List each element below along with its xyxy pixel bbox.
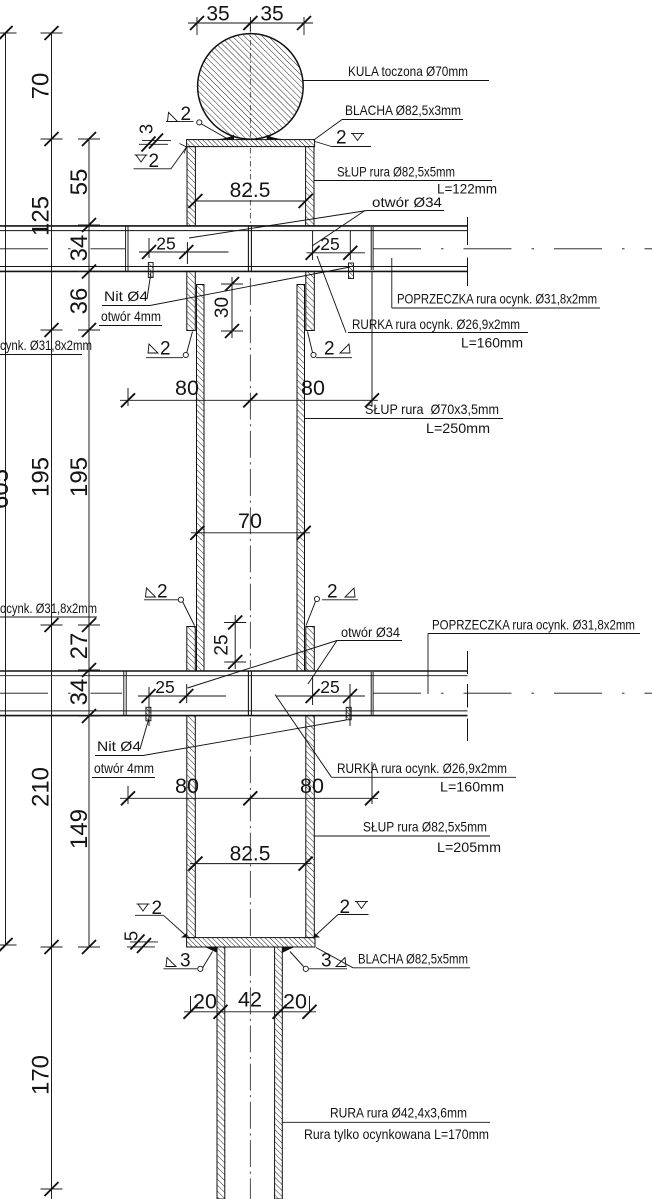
svg-text:80: 80 xyxy=(175,774,199,798)
svg-text:Rura tylko ocynkowana L=170mm: Rura tylko ocynkowana L=170mm xyxy=(304,1126,489,1142)
svg-text:2: 2 xyxy=(160,339,171,360)
svg-text:34: 34 xyxy=(66,679,93,706)
svg-text:30: 30 xyxy=(212,297,233,318)
svg-text:2: 2 xyxy=(324,339,335,360)
svg-text:Nit Ø4: Nit Ø4 xyxy=(104,288,148,304)
svg-text:cynk. Ø31,8x2mm: cynk. Ø31,8x2mm xyxy=(0,337,92,353)
svg-text:80: 80 xyxy=(175,376,199,400)
svg-text:Nit Ø4: Nit Ø4 xyxy=(97,738,141,754)
svg-text:BLACHA Ø82,5x5mm: BLACHA Ø82,5x5mm xyxy=(358,951,468,967)
svg-text:82.5: 82.5 xyxy=(230,843,271,866)
svg-text:20: 20 xyxy=(193,990,217,1014)
svg-text:2: 2 xyxy=(152,898,163,919)
svg-text:SŁUP rura Ø70x3,5mm: SŁUP rura Ø70x3,5mm xyxy=(365,401,499,417)
svg-text:POPRZECZKA rura ocynk. Ø31,8x2: POPRZECZKA rura ocynk. Ø31,8x2mm xyxy=(397,291,597,307)
svg-text:125: 125 xyxy=(28,196,55,236)
svg-text:80: 80 xyxy=(301,376,325,400)
svg-text:55: 55 xyxy=(66,169,93,196)
svg-text:RURKA rura ocynk. Ø26,9x2mm: RURKA rura ocynk. Ø26,9x2mm xyxy=(352,316,520,332)
svg-text:36: 36 xyxy=(66,288,93,315)
svg-text:RURA rura Ø42,4x3,6mm: RURA rura Ø42,4x3,6mm xyxy=(330,1105,467,1121)
svg-text:SŁUP rura Ø82,5x5mm: SŁUP rura Ø82,5x5mm xyxy=(337,164,455,180)
svg-text:70: 70 xyxy=(28,73,55,100)
svg-text:149: 149 xyxy=(66,809,93,849)
svg-text:2: 2 xyxy=(336,128,347,149)
svg-text:34: 34 xyxy=(66,235,93,262)
svg-text:210: 210 xyxy=(28,767,55,807)
svg-text:25: 25 xyxy=(155,677,174,697)
svg-text:L=122mm: L=122mm xyxy=(437,181,497,197)
svg-text:L=160mm: L=160mm xyxy=(461,335,523,351)
svg-text:otwór Ø34: otwór Ø34 xyxy=(372,194,442,210)
svg-text:L=160mm: L=160mm xyxy=(440,779,504,795)
svg-text:42: 42 xyxy=(238,988,262,1012)
svg-text:35: 35 xyxy=(206,3,229,26)
svg-text:otwór Ø34: otwór Ø34 xyxy=(341,624,400,640)
svg-text:170: 170 xyxy=(28,1055,55,1095)
svg-text:25: 25 xyxy=(156,234,175,254)
svg-text:25: 25 xyxy=(320,677,339,697)
svg-text:25: 25 xyxy=(320,234,339,254)
svg-text:195: 195 xyxy=(66,457,93,497)
svg-text:80: 80 xyxy=(300,774,324,798)
svg-text:35: 35 xyxy=(260,3,283,26)
svg-text:otwór 4mm: otwór 4mm xyxy=(101,308,161,324)
svg-text:L=250mm: L=250mm xyxy=(426,420,490,436)
svg-text:otwór 4mm: otwór 4mm xyxy=(94,760,154,776)
svg-text:3: 3 xyxy=(136,124,157,134)
svg-text:L=205mm: L=205mm xyxy=(437,839,501,855)
svg-text:27: 27 xyxy=(66,633,93,660)
svg-text:5: 5 xyxy=(121,931,142,941)
svg-text:RURKA rura ocynk. Ø26,9x2mm: RURKA rura ocynk. Ø26,9x2mm xyxy=(337,760,507,776)
svg-text:POPRZECZKA rura ocynk. Ø31,8x2: POPRZECZKA rura ocynk. Ø31,8x2mm xyxy=(432,617,635,633)
svg-text:82.5: 82.5 xyxy=(230,179,271,202)
svg-text:195: 195 xyxy=(28,457,55,497)
svg-text:20: 20 xyxy=(283,990,307,1014)
svg-text:25: 25 xyxy=(212,634,233,655)
svg-text:70: 70 xyxy=(238,509,262,533)
svg-text:605: 605 xyxy=(0,469,14,509)
svg-text:KULA toczona Ø70mm: KULA toczona Ø70mm xyxy=(348,63,468,79)
svg-text:ocynk. Ø31,8x2mm: ocynk. Ø31,8x2mm xyxy=(0,600,97,616)
svg-text:SŁUP rura Ø82,5x5mm: SŁUP rura Ø82,5x5mm xyxy=(363,819,487,835)
svg-text:BLACHA Ø82,5x3mm: BLACHA Ø82,5x3mm xyxy=(345,102,461,118)
